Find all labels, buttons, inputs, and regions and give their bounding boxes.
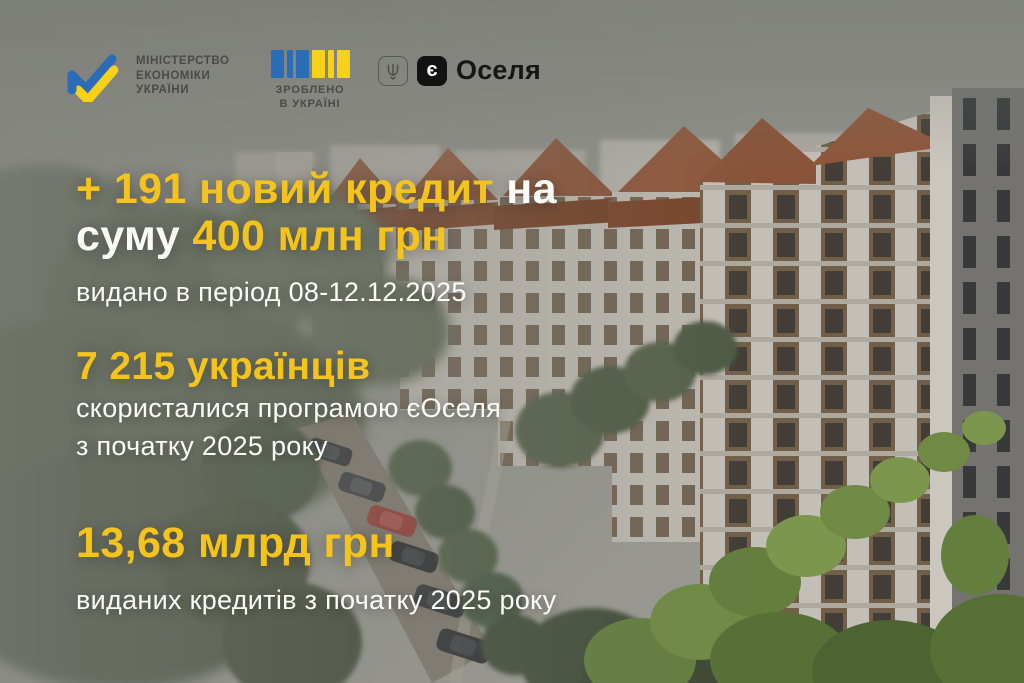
ministry-logo-text: МІНІСТЕРСТВО ЕКОНОМІКИ УКРАЇНИ — [136, 54, 230, 99]
ministry-m-check-icon — [66, 50, 124, 102]
users-caption-line-2: з початку 2025 року — [76, 427, 501, 465]
total-caption: виданих кредитів з початку 2025 року — [76, 581, 556, 619]
headline-sum-word: суму — [76, 212, 192, 260]
eoselia-badge-letter: є — [426, 60, 437, 80]
tryzub-icon — [378, 56, 408, 86]
new-credits-count: + 191 новий кредит — [76, 165, 494, 213]
headline-block: + 191 новий кредит на суму 400 млн грн в… — [76, 166, 557, 311]
eoselia-e-badge-icon: є — [417, 56, 447, 86]
made-in-ukraine-flag-bars-icon — [263, 50, 357, 78]
headline-line-1: + 191 новий кредит на — [76, 166, 557, 213]
headline-connector: на — [494, 165, 557, 213]
new-credits-amount: 400 млн грн — [192, 212, 447, 260]
made-in-ukraine-line: ЗРОБЛЕНО — [263, 83, 357, 97]
users-caption-line-1: скористалися програмою єОселя — [76, 389, 501, 427]
ministry-logo-line: УКРАЇНИ — [136, 83, 230, 98]
eoselia-logo: є Оселя — [378, 55, 541, 86]
ministry-of-economy-logo: МІНІСТЕРСТВО ЕКОНОМІКИ УКРАЇНИ — [66, 50, 230, 102]
users-count: 7 215 українців — [76, 344, 501, 389]
made-in-ukraine-line: В УКРАЇНІ — [263, 97, 357, 111]
period-text: видано в період 08-12.12.2025 — [76, 273, 557, 311]
ministry-logo-line: ЕКОНОМІКИ — [136, 69, 230, 84]
ministry-logo-line: МІНІСТЕРСТВО — [136, 54, 230, 69]
headline-line-2: суму 400 млн грн — [76, 213, 557, 260]
total-amount: 13,68 млрд грн — [76, 519, 556, 567]
total-amount-block: 13,68 млрд грн виданих кредитів з початк… — [76, 519, 556, 619]
eoselia-wordmark: Оселя — [456, 55, 541, 86]
eoselia-weekly-infographic: МІНІСТЕРСТВО ЕКОНОМІКИ УКРАЇНИ ЗРОБЛЕНО … — [0, 0, 1024, 683]
users-stat-block: 7 215 українців скористалися програмою є… — [76, 344, 501, 465]
made-in-ukraine-text: ЗРОБЛЕНО В УКРАЇНІ — [263, 83, 357, 112]
made-in-ukraine-logo: ЗРОБЛЕНО В УКРАЇНІ — [263, 50, 357, 112]
